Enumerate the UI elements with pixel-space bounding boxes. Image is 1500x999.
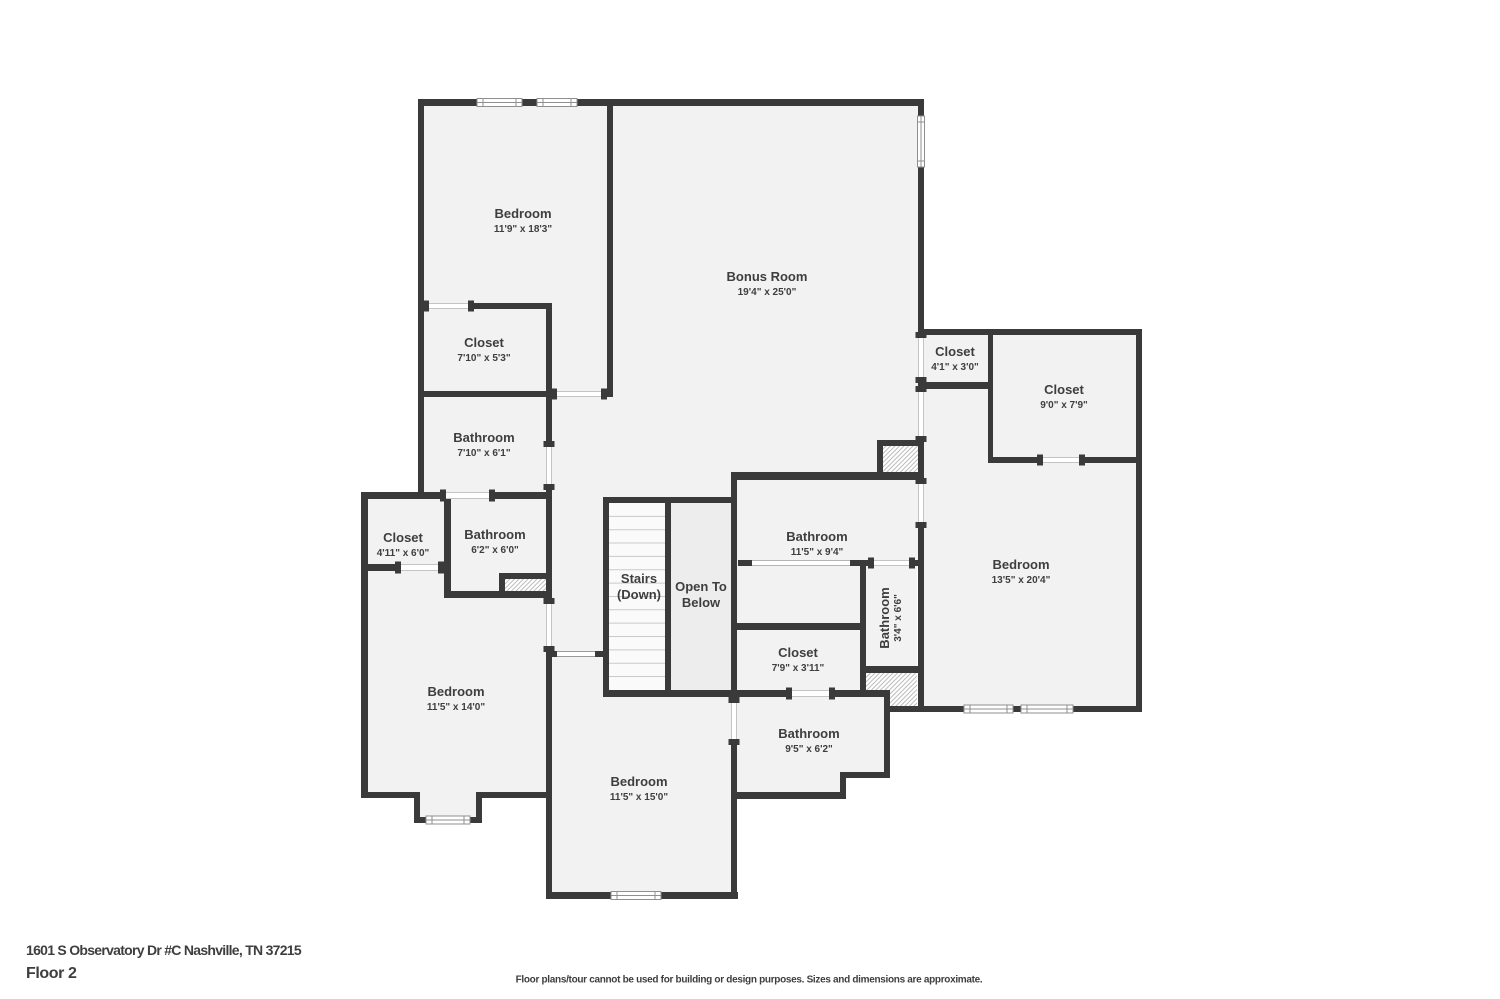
svg-text:Closet: Closet: [383, 530, 423, 545]
svg-text:Bedroom: Bedroom: [427, 684, 484, 699]
svg-text:Closet: Closet: [935, 344, 975, 359]
svg-text:13'5" x 20'4": 13'5" x 20'4": [992, 575, 1051, 586]
svg-text:7'9" x 3'11": 7'9" x 3'11": [772, 663, 825, 674]
svg-text:Floor plans/tour cannot be use: Floor plans/tour cannot be used for buil…: [516, 975, 983, 986]
svg-text:19'4" x 25'0": 19'4" x 25'0": [738, 287, 797, 298]
svg-text:7'10" x 5'3": 7'10" x 5'3": [457, 353, 510, 364]
svg-text:Bathroom: Bathroom: [877, 587, 892, 648]
svg-text:Below: Below: [682, 595, 721, 610]
svg-text:11'5" x 15'0": 11'5" x 15'0": [610, 792, 668, 803]
svg-text:Stairs: Stairs: [621, 571, 657, 586]
svg-text:11'5" x 14'0": 11'5" x 14'0": [427, 702, 485, 713]
svg-text:Bathroom: Bathroom: [778, 726, 839, 741]
svg-text:4'1" x 3'0": 4'1" x 3'0": [931, 362, 979, 373]
svg-text:1601 S Observatory Dr #C Nashv: 1601 S Observatory Dr #C Nashville, TN 3…: [26, 942, 302, 958]
svg-text:4'11" x 6'0": 4'11" x 6'0": [377, 548, 430, 559]
svg-text:Bathroom: Bathroom: [453, 430, 514, 445]
svg-text:Bedroom: Bedroom: [494, 206, 551, 221]
svg-text:3'4" x 6'6": 3'4" x 6'6": [893, 594, 904, 642]
svg-text:Bathroom: Bathroom: [786, 529, 847, 544]
svg-text:Closet: Closet: [464, 335, 504, 350]
svg-text:Closet: Closet: [778, 645, 818, 660]
svg-text:Bedroom: Bedroom: [610, 774, 667, 789]
svg-text:7'10" x 6'1": 7'10" x 6'1": [457, 448, 510, 459]
svg-text:Bonus Room: Bonus Room: [727, 269, 808, 284]
svg-text:9'0" x 7'9": 9'0" x 7'9": [1040, 400, 1088, 411]
svg-text:11'9" x 18'3": 11'9" x 18'3": [494, 224, 552, 235]
svg-text:9'5" x 6'2": 9'5" x 6'2": [785, 744, 833, 755]
svg-text:Closet: Closet: [1044, 382, 1084, 397]
svg-text:11'5" x 9'4": 11'5" x 9'4": [791, 547, 844, 558]
svg-text:Floor 2: Floor 2: [26, 965, 77, 982]
svg-text:6'2" x 6'0": 6'2" x 6'0": [471, 545, 519, 556]
svg-text:Bedroom: Bedroom: [992, 557, 1049, 572]
svg-text:Bathroom: Bathroom: [464, 527, 525, 542]
svg-text:Open To: Open To: [675, 579, 727, 594]
svg-text:(Down): (Down): [617, 587, 661, 602]
